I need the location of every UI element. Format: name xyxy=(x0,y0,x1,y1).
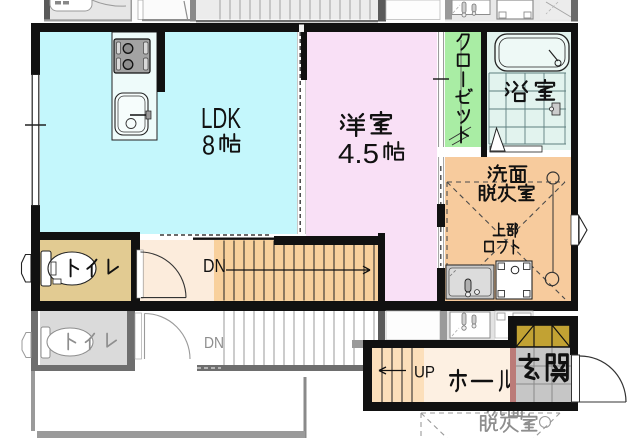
svg-text:DN: DN xyxy=(203,256,226,276)
svg-text:UP: UP xyxy=(414,364,435,382)
svg-text:DN: DN xyxy=(204,335,224,352)
svg-text:4.5: 4.5 xyxy=(338,138,379,169)
svg-text:8: 8 xyxy=(202,130,215,161)
